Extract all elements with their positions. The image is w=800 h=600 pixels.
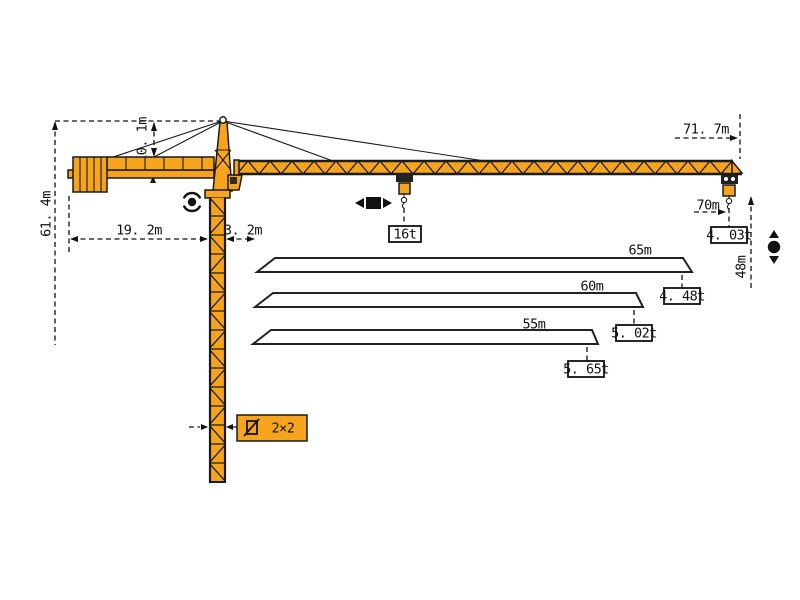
- mast-section-label: 2×2: [272, 421, 295, 437]
- diagram-svg: 61. 4m 10. 1m: [0, 0, 800, 600]
- slewing-symbol: [184, 193, 200, 211]
- max-load-label: 16t: [394, 227, 417, 243]
- bar-60-load-label: 5. 02t: [611, 326, 657, 342]
- tower-mast: [209, 197, 226, 482]
- jib-tip: [732, 161, 742, 174]
- tip-trolley-wheel: [724, 177, 728, 181]
- dim-rear-offset: 3. 2m: [224, 223, 263, 243]
- dim-hook-range-label: 48m: [734, 255, 750, 278]
- trolley-hook-tip: [721, 175, 738, 210]
- dim-counterjib-label: 19. 2m: [116, 223, 162, 239]
- front-pendant-cable-short: [223, 121, 333, 161]
- dim-max-radius-label: 70m: [697, 198, 720, 214]
- tip-trolley-wheel: [731, 177, 735, 181]
- tower-crane-load-diagram: 61. 4m 10. 1m: [0, 0, 800, 600]
- counterjib-panels: [107, 157, 214, 170]
- bar-55-length-label: 55m: [523, 317, 546, 333]
- dim-jib-span-label: 71. 7m: [683, 122, 729, 138]
- bar-65-load-label: 4. 48t: [659, 289, 705, 305]
- up-arrowhead: [151, 122, 157, 131]
- jib-bar-60: [255, 293, 643, 307]
- trolley-square-icon: [366, 197, 381, 209]
- dim-max-radius: 70m 4. 03t: [694, 198, 752, 244]
- max-load-callout: 16t: [389, 208, 421, 243]
- section-symbol-icon: [244, 419, 259, 436]
- jib-config-55m: 55m 5. 65t: [253, 317, 609, 378]
- jib: [234, 160, 742, 175]
- left-arrow-icon: [355, 198, 364, 208]
- dim-counterjib: 19. 2m: [69, 196, 208, 253]
- rear-pendant-cable: [154, 121, 223, 157]
- trolley-frame: [396, 174, 413, 182]
- cab-window: [230, 177, 237, 184]
- left-arrowhead: [70, 236, 78, 242]
- jib-lattice: [237, 161, 732, 174]
- hoist-dot-icon: [768, 241, 780, 253]
- tip-hook-block: [723, 185, 735, 196]
- apex-pulley: [220, 117, 226, 123]
- tip-hook-eye: [726, 198, 731, 203]
- trolley-hook-mid: [396, 174, 413, 209]
- right-arrowhead: [200, 236, 208, 242]
- jib-bar-55: [253, 330, 598, 344]
- dim-rear-offset-label: 3. 2m: [224, 223, 263, 239]
- jib-bar-65: [257, 258, 692, 272]
- trolley-travel-symbol: [355, 197, 392, 209]
- bar-65-length-label: 65m: [629, 243, 652, 259]
- tip-trolley-frame: [721, 175, 738, 184]
- front-pendant-cable-long: [223, 121, 485, 161]
- bar-60-length-label: 60m: [581, 279, 604, 295]
- dim-head-height-label: 10. 1m: [135, 117, 151, 163]
- slewing-platform: [205, 190, 230, 198]
- mast-lattice: [209, 197, 226, 482]
- tip-load-70-label: 4. 03t: [706, 228, 752, 244]
- right-arrow-icon: [383, 198, 392, 208]
- operator-cab: [228, 175, 242, 190]
- hoisting-symbol: [768, 230, 780, 264]
- mast-section-callout: 2×2: [189, 415, 307, 441]
- dim-total-height-label: 61. 4m: [39, 191, 55, 237]
- jib-root-plate: [234, 160, 239, 175]
- right-arrowhead: [201, 424, 208, 430]
- bar-55-load-label: 5. 65t: [563, 362, 609, 378]
- rotation-arc-bottom: [184, 207, 200, 212]
- rotation-dot-icon: [188, 198, 196, 206]
- up-arrowhead: [52, 121, 58, 130]
- down-arrow-icon: [769, 256, 779, 264]
- hook-eye: [401, 197, 406, 202]
- hook-block: [399, 183, 410, 194]
- hook-curve: [402, 203, 404, 209]
- up-arrowhead: [748, 196, 754, 205]
- right-arrowhead: [730, 135, 738, 141]
- counterweight-blocks: [73, 157, 107, 192]
- up-arrow-icon: [769, 230, 779, 238]
- counter-jib: [68, 157, 214, 192]
- rotation-arc-top: [184, 193, 200, 198]
- left-arrowhead: [226, 424, 233, 430]
- dim-jib-span: 71. 7m: [675, 114, 740, 159]
